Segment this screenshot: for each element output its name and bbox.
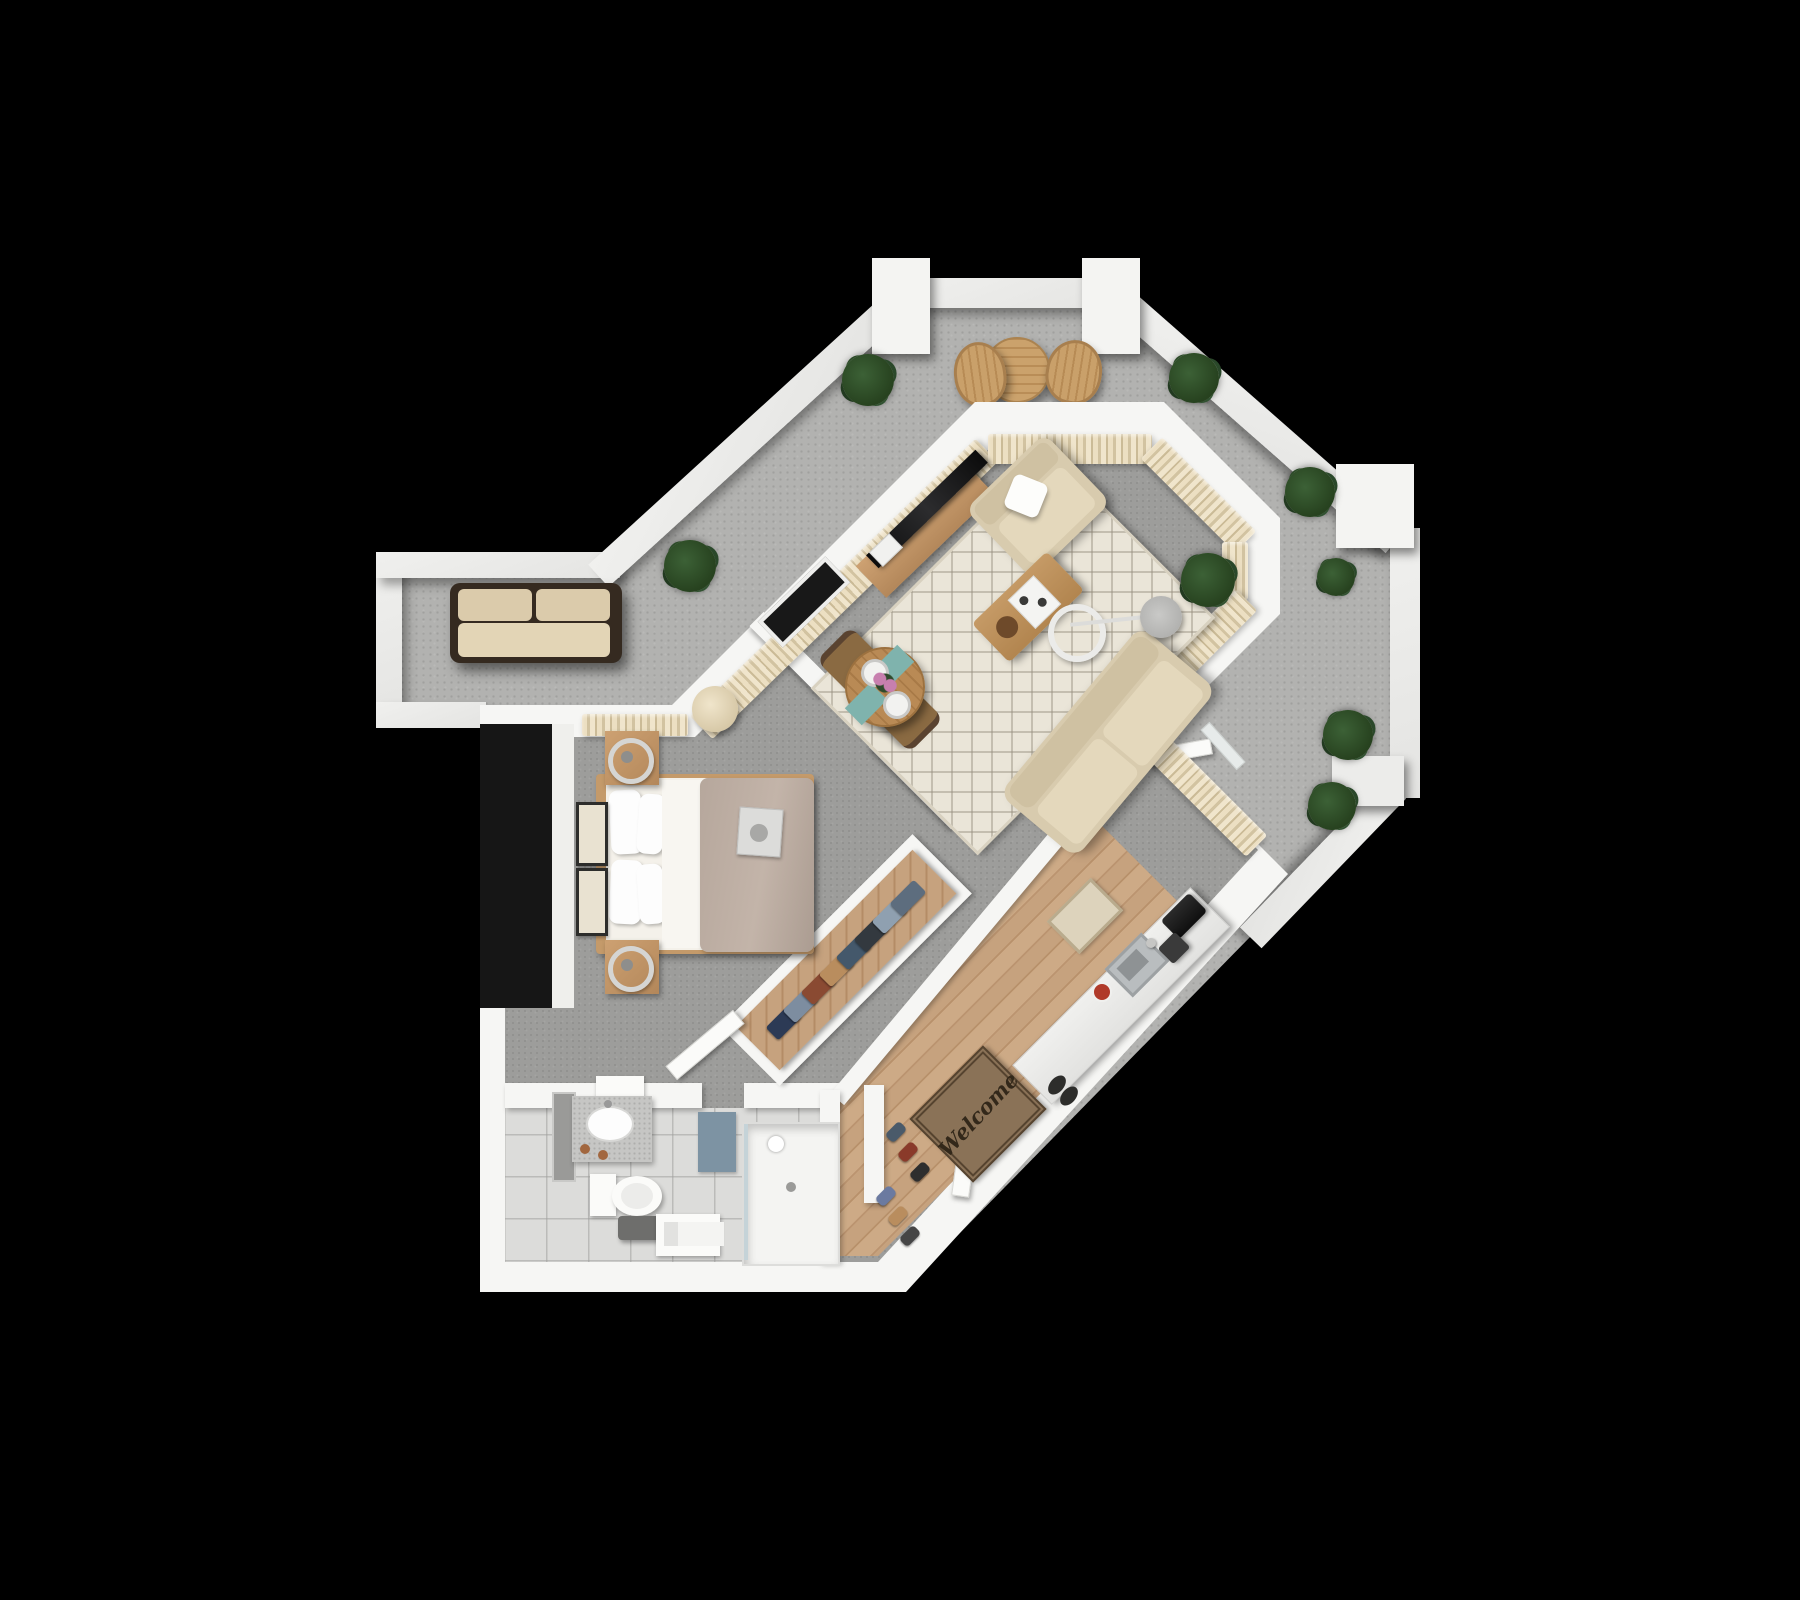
- kitchen-faucet: [1146, 938, 1156, 948]
- wall-art: [576, 868, 608, 936]
- towel: [664, 1222, 724, 1246]
- sink-basin: [1116, 949, 1149, 982]
- terrace-pillar-right: [1082, 258, 1140, 354]
- potted-plant: [1323, 710, 1373, 760]
- toilet-bowl: [612, 1176, 662, 1216]
- vanity-faucet: [604, 1100, 612, 1108]
- wall-art: [576, 802, 608, 866]
- bed-duvet: [700, 778, 814, 952]
- table-flowers: [872, 670, 898, 696]
- shower-stall: [742, 1122, 840, 1266]
- towel-bench: [656, 1214, 720, 1256]
- entry-closet-divider: [864, 1085, 884, 1203]
- espresso-cup: [1018, 594, 1031, 607]
- toilet-seat: [621, 1183, 653, 1209]
- breakfast-tray: [736, 807, 783, 858]
- outdoor-sofa-back-cushion: [458, 589, 532, 621]
- arc-floor-lamp-base: [1140, 596, 1182, 638]
- bed-sheet: [662, 780, 704, 948]
- espresso-cup: [1036, 596, 1049, 609]
- soap-jar: [598, 1150, 608, 1160]
- shower-glass: [744, 1124, 748, 1260]
- bath-mat: [698, 1112, 736, 1172]
- coffee-pot: [749, 823, 768, 842]
- bedroom-window-sill: [552, 724, 574, 1008]
- potted-plant: [1181, 553, 1235, 607]
- interior-carpet: [0, 0, 1800, 1600]
- shower-head: [768, 1136, 784, 1152]
- vanity: [572, 1096, 652, 1162]
- soap-jar: [580, 1144, 590, 1154]
- outdoor-sofa: [450, 583, 622, 663]
- outdoor-sofa-back-cushion: [536, 589, 610, 621]
- potted-plant: [842, 354, 894, 406]
- table-lamp-finial: [621, 959, 633, 971]
- shower-drain: [786, 1182, 796, 1192]
- table-lamp-finial: [621, 751, 633, 763]
- curtain-bundle: [692, 686, 738, 732]
- terrace-pillar-east: [1336, 464, 1414, 548]
- terrace-pillar-left: [872, 258, 930, 354]
- potted-plant: [1169, 353, 1219, 403]
- vanity-sink: [586, 1106, 634, 1142]
- parapet-arm-top: [376, 552, 620, 578]
- fruit-bowl: [1092, 982, 1112, 1002]
- potted-plant: [1308, 782, 1356, 830]
- round-tray: [992, 612, 1023, 643]
- bedroom-window: [480, 724, 552, 1008]
- floor-plan-scene: Welcome: [0, 0, 1800, 1600]
- potted-plant: [1317, 558, 1355, 596]
- potted-plant: [664, 540, 716, 592]
- bath-stool: [618, 1216, 660, 1240]
- potted-plant: [1285, 467, 1335, 517]
- parapet-arm-bottom: [376, 702, 486, 728]
- arc-floor-lamp-shade: [1048, 604, 1106, 662]
- outdoor-sofa-seat-cushion: [458, 623, 610, 657]
